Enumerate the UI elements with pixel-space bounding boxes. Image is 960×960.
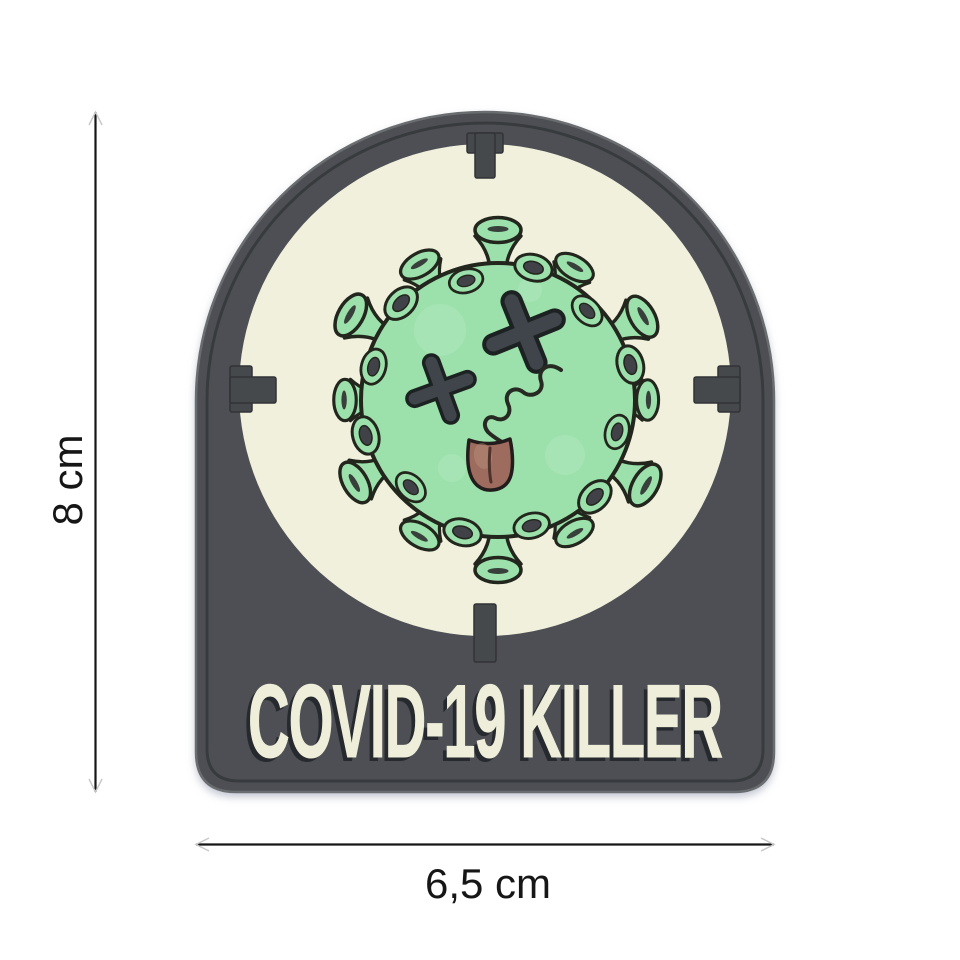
width-dimension-label: 6,5 cm [425,860,551,907]
patch-title-text: COVID-19 KILLER [248,664,722,780]
virus-tongue [468,439,513,490]
patch-illustration: 8 cm 6,5 cm [0,0,960,960]
reticle-tick-bottom [474,604,496,662]
width-dimension: 6,5 cm [196,838,774,907]
height-dimension-label: 8 cm [44,434,91,525]
patch: COVID-19 KILLER COVID-19 KILLER [196,112,774,792]
patch-title: COVID-19 KILLER COVID-19 KILLER [244,664,722,784]
product-photo: 8 cm 6,5 cm [0,0,960,960]
height-dimension: 8 cm [44,112,102,792]
